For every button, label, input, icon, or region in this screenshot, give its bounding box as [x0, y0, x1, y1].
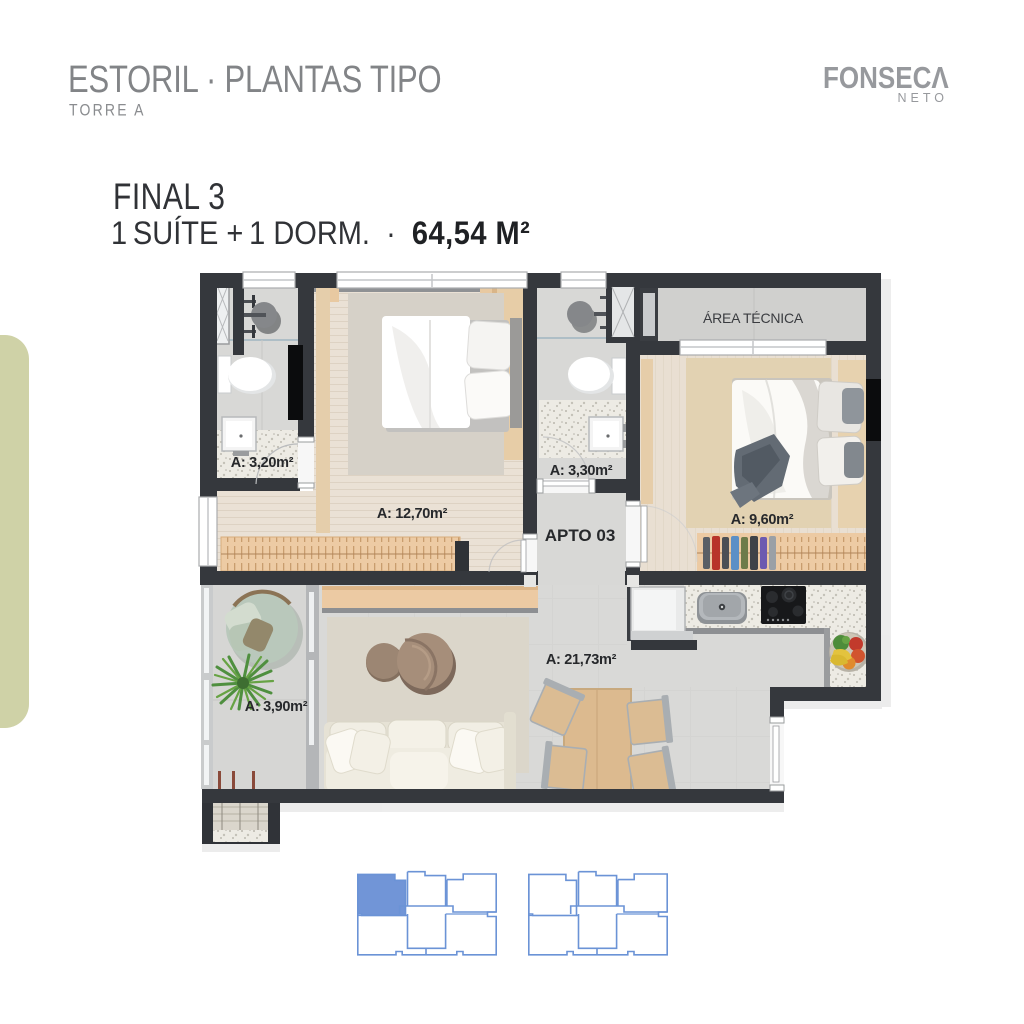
svg-text:A: 3,20m²: A: 3,20m²	[231, 455, 294, 471]
svg-text:A: 9,60m²: A: 9,60m²	[731, 512, 794, 528]
svg-text:A: 3,30m²: A: 3,30m²	[550, 463, 613, 479]
svg-text:ÁREA TÉCNICA: ÁREA TÉCNICA	[703, 310, 804, 326]
svg-text:A: 3,90m²: A: 3,90m²	[245, 699, 308, 715]
svg-text:A: 12,70m²: A: 12,70m²	[377, 506, 448, 522]
svg-text:A: 21,73m²: A: 21,73m²	[546, 652, 617, 668]
svg-text:APTO 03: APTO 03	[545, 526, 616, 545]
